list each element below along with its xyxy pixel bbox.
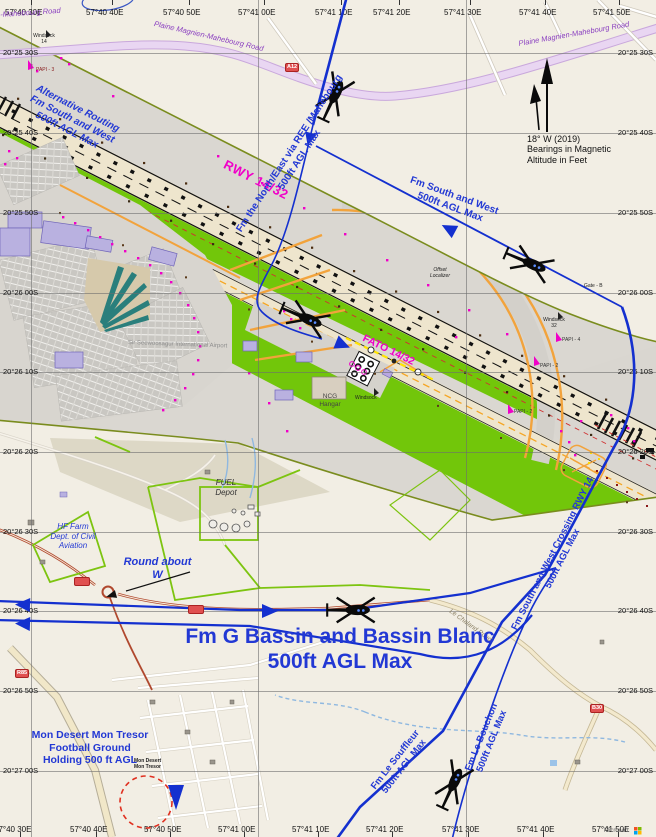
holding-arrow bbox=[168, 785, 184, 810]
helicopter-icon bbox=[327, 598, 375, 623]
route-crossing-rwy14 bbox=[336, 307, 634, 837]
route-g-bassin-upper bbox=[0, 568, 556, 610]
route-overlay bbox=[0, 0, 656, 837]
helicopter-icon bbox=[312, 71, 354, 124]
helicopter-icon bbox=[277, 297, 330, 338]
helicopter-icon bbox=[431, 759, 473, 812]
holding-circle bbox=[120, 776, 172, 828]
map-canvas[interactable]: 57°40 30E57°40 40E57°40 50E57°41 00E57°4… bbox=[0, 0, 656, 837]
roundabout-pointer bbox=[105, 572, 190, 601]
route-g-bassin-lower bbox=[0, 615, 532, 658]
route-le-bouchon bbox=[452, 568, 556, 837]
route-north-continuation bbox=[257, 125, 322, 339]
route-from-south-west bbox=[316, 146, 622, 307]
north-arrow bbox=[530, 58, 553, 132]
microsoft-logo-icon bbox=[634, 827, 642, 835]
helicopter-icon bbox=[501, 242, 554, 283]
